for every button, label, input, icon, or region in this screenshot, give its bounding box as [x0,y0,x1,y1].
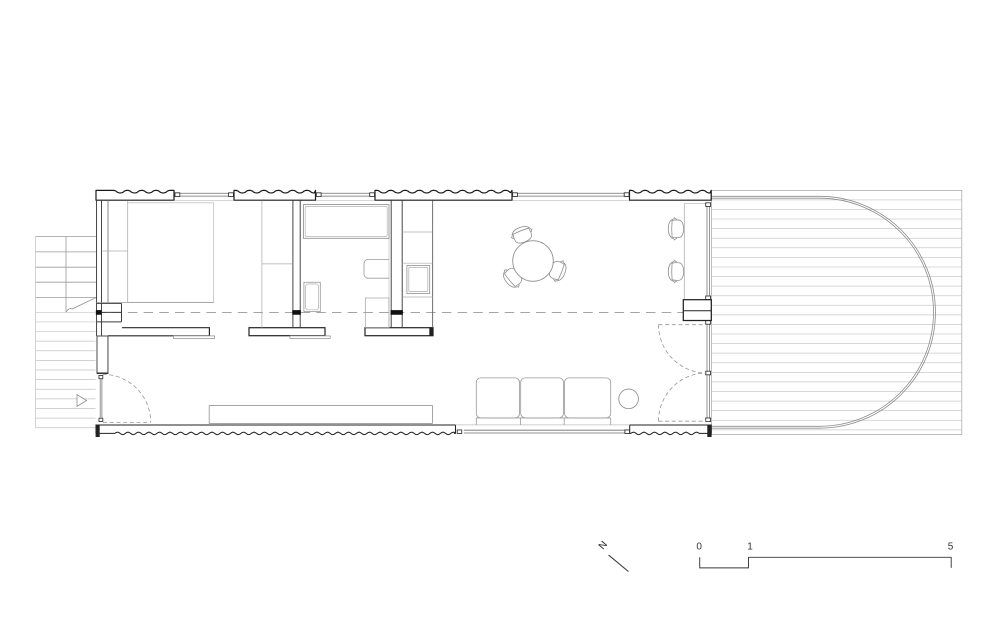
svg-text:0: 0 [696,541,702,552]
svg-text:1: 1 [747,541,753,552]
svg-text:5: 5 [948,541,954,552]
svg-text:N: N [597,539,610,552]
